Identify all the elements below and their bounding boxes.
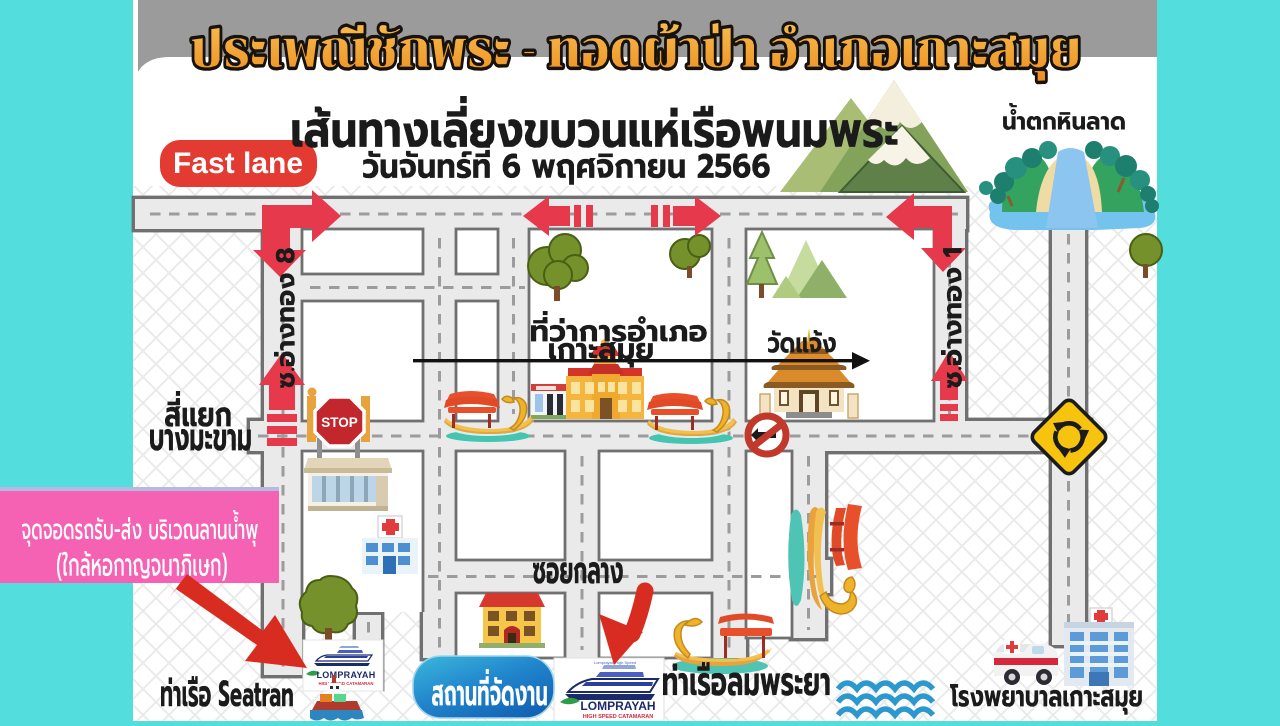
svg-text:STOP: STOP [321,415,358,430]
svg-text:LOMPRAYAH: LOMPRAYAH [580,699,655,713]
svg-text:HIGH SPEED CATAMARAN: HIGH SPEED CATAMARAN [583,714,653,720]
svg-text:LOMPRAYAH: LOMPRAYAH [316,670,375,680]
svg-text:HIGH SPEED CATAMARAN: HIGH SPEED CATAMARAN [319,681,374,686]
svg-text:Fast lane: Fast lane [173,147,303,180]
